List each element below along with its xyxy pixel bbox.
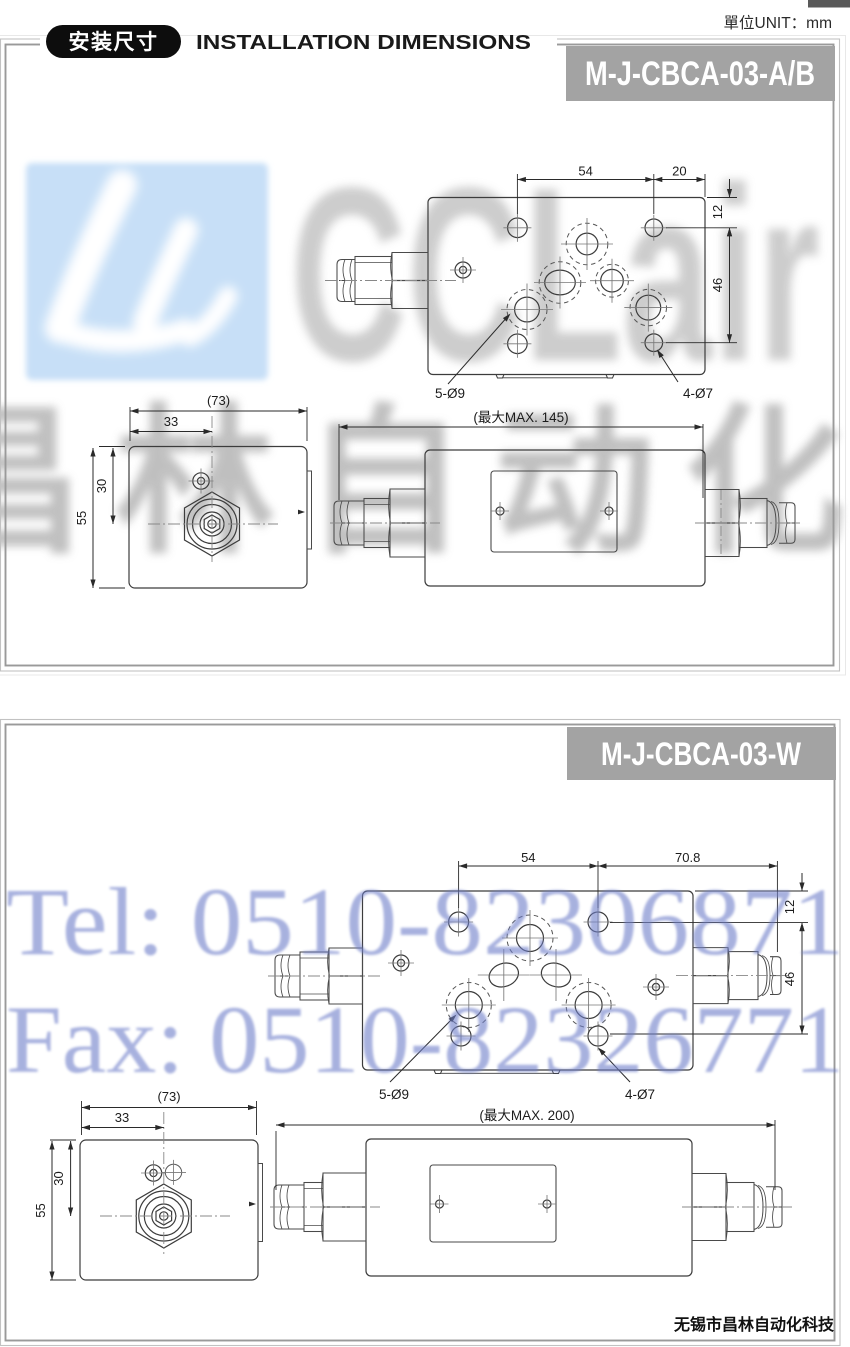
svg-text:CCLair: CCLair bbox=[290, 135, 820, 413]
svg-text:54: 54 bbox=[521, 850, 535, 865]
svg-text:33: 33 bbox=[164, 414, 178, 429]
svg-text:M-J-CBCA-03-W: M-J-CBCA-03-W bbox=[601, 736, 802, 772]
svg-text:70.8: 70.8 bbox=[675, 850, 700, 865]
svg-text:M-J-CBCA-03-A/B: M-J-CBCA-03-A/B bbox=[585, 55, 815, 93]
svg-text:54: 54 bbox=[578, 164, 592, 179]
svg-text:30: 30 bbox=[51, 1171, 66, 1185]
svg-text:(最大MAX. 200): (最大MAX. 200) bbox=[479, 1108, 574, 1123]
svg-text:單位UNIT：mm: 單位UNIT：mm bbox=[724, 14, 833, 32]
svg-text:55: 55 bbox=[74, 511, 89, 525]
svg-text:5-Ø9: 5-Ø9 bbox=[435, 386, 465, 401]
svg-text:INSTALLATION DIMENSIONS: INSTALLATION DIMENSIONS bbox=[196, 32, 531, 54]
svg-text:安装尺寸: 安装尺寸 bbox=[69, 30, 159, 54]
svg-text:Fax: 0510-82326771: Fax: 0510-82326771 bbox=[6, 986, 844, 1093]
svg-text:(73): (73) bbox=[207, 393, 230, 408]
svg-text:30: 30 bbox=[94, 479, 109, 493]
svg-text:55: 55 bbox=[33, 1203, 48, 1217]
svg-text:Tel: 0510-82306871: Tel: 0510-82306871 bbox=[6, 868, 844, 975]
svg-text:无锡市昌林自动化科技: 无锡市昌林自动化科技 bbox=[673, 1315, 835, 1334]
svg-text:46: 46 bbox=[710, 278, 725, 292]
svg-text:12: 12 bbox=[710, 205, 725, 219]
svg-text:20: 20 bbox=[672, 164, 686, 179]
svg-text:(最大MAX. 145): (最大MAX. 145) bbox=[473, 410, 568, 425]
svg-text:4-Ø7: 4-Ø7 bbox=[683, 386, 713, 401]
svg-text:33: 33 bbox=[115, 1110, 129, 1125]
